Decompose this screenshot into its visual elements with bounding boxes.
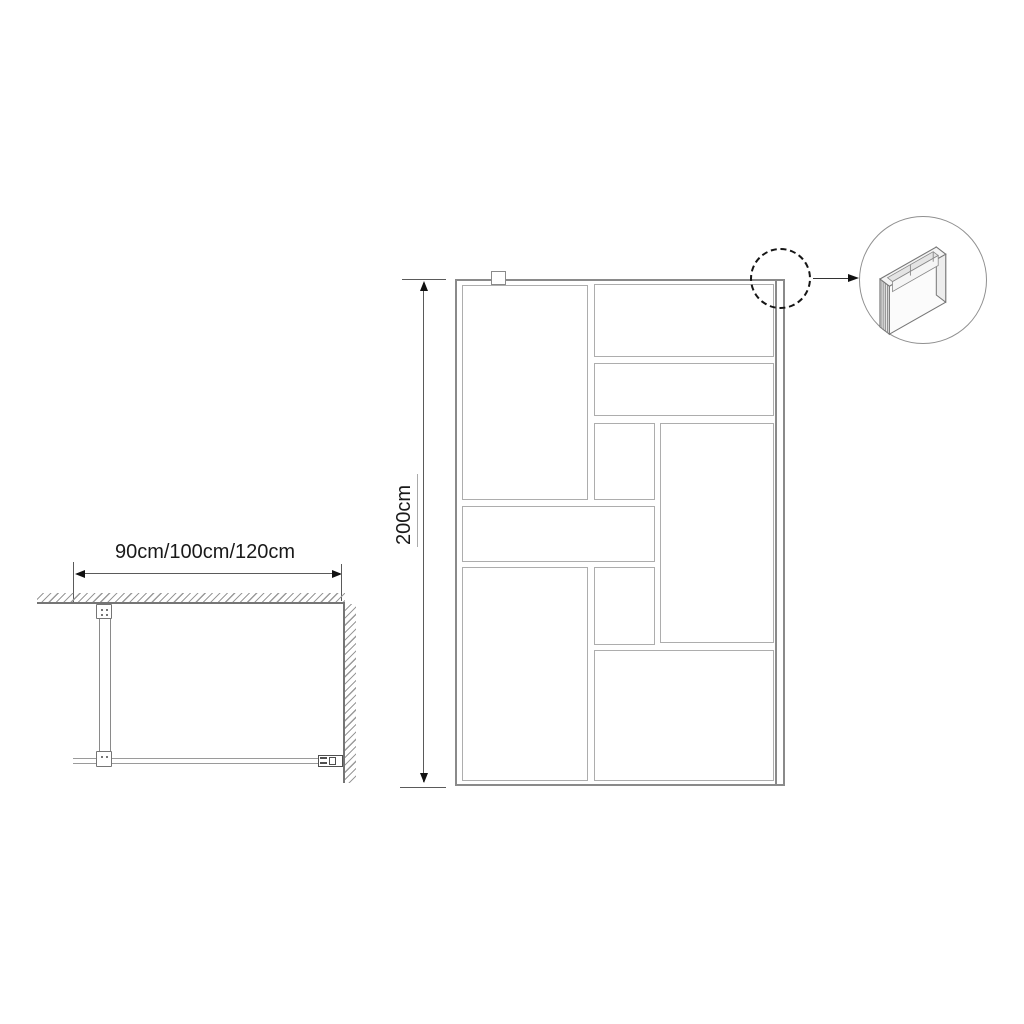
screw-dot-icon [106,614,108,616]
glass-pane-1 [462,285,588,500]
detail-circle [859,216,987,344]
screw-dot-icon [106,756,108,758]
glass-pane-8 [594,567,655,645]
plan-width-dimension-label: 90cm/100cm/120cm [85,541,325,563]
callout-arrow-line [813,278,850,279]
screw-dot-icon [101,756,103,758]
support-bracket-tab [491,271,506,285]
glass-pane-9 [594,650,774,781]
screw-dot-icon [106,609,108,611]
plan-width-dimension-line [77,573,340,574]
glass-pane-4 [594,423,655,500]
screw-dot-icon [101,609,103,611]
glass-pane-3 [594,363,774,416]
ceiling-bracket [96,604,112,619]
dimension-tick-line [417,474,418,547]
front-height-dimension-line [423,283,424,782]
glass-clamp [96,751,112,767]
glass-pane-2 [594,284,774,357]
extension-line-top [402,279,446,280]
callout-arrowhead-icon [848,274,859,282]
wall-profile-strip [775,281,777,784]
extension-line-bottom [400,787,446,788]
detail-dashed-circle [750,248,811,309]
wall-connector [318,755,343,767]
glass-pane-6 [462,506,655,562]
shower-screen-technical-drawing: 90cm/100cm/120cm [0,0,1024,1024]
dimension-arrow-up-icon [420,281,428,291]
connector-block [329,757,337,765]
front-height-dimension-label: 200cm [393,485,415,545]
wall-profile-3d-icon [860,217,988,345]
support-bar-plan [99,618,111,754]
glass-pane-7 [462,567,588,781]
side-wall-hatch [343,604,356,783]
dimension-arrow-down-icon [420,773,428,783]
ceiling-wall-hatch [37,593,345,604]
connector-gasket [320,757,327,764]
dimension-arrow-left-icon [75,570,85,578]
screw-dot-icon [101,614,103,616]
glass-pane-5 [660,423,774,643]
